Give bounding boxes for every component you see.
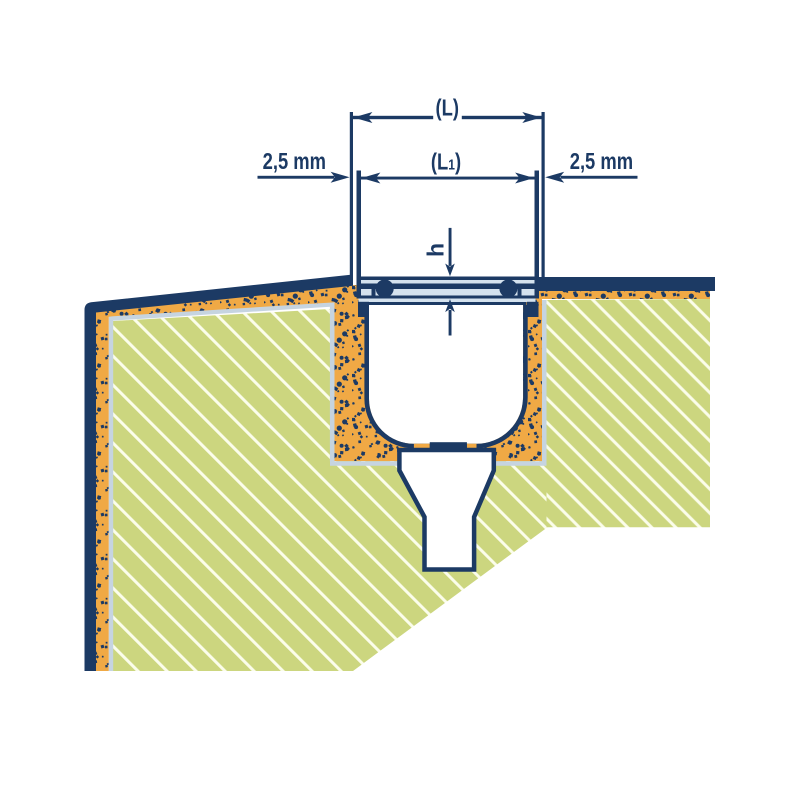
svg-text:2,5 mm: 2,5 mm (263, 149, 326, 174)
svg-text:h: h (423, 243, 449, 257)
svg-text:2,5 mm: 2,5 mm (570, 149, 633, 174)
svg-text:(L1): (L1) (431, 150, 461, 175)
svg-text:(L): (L) (435, 96, 458, 121)
